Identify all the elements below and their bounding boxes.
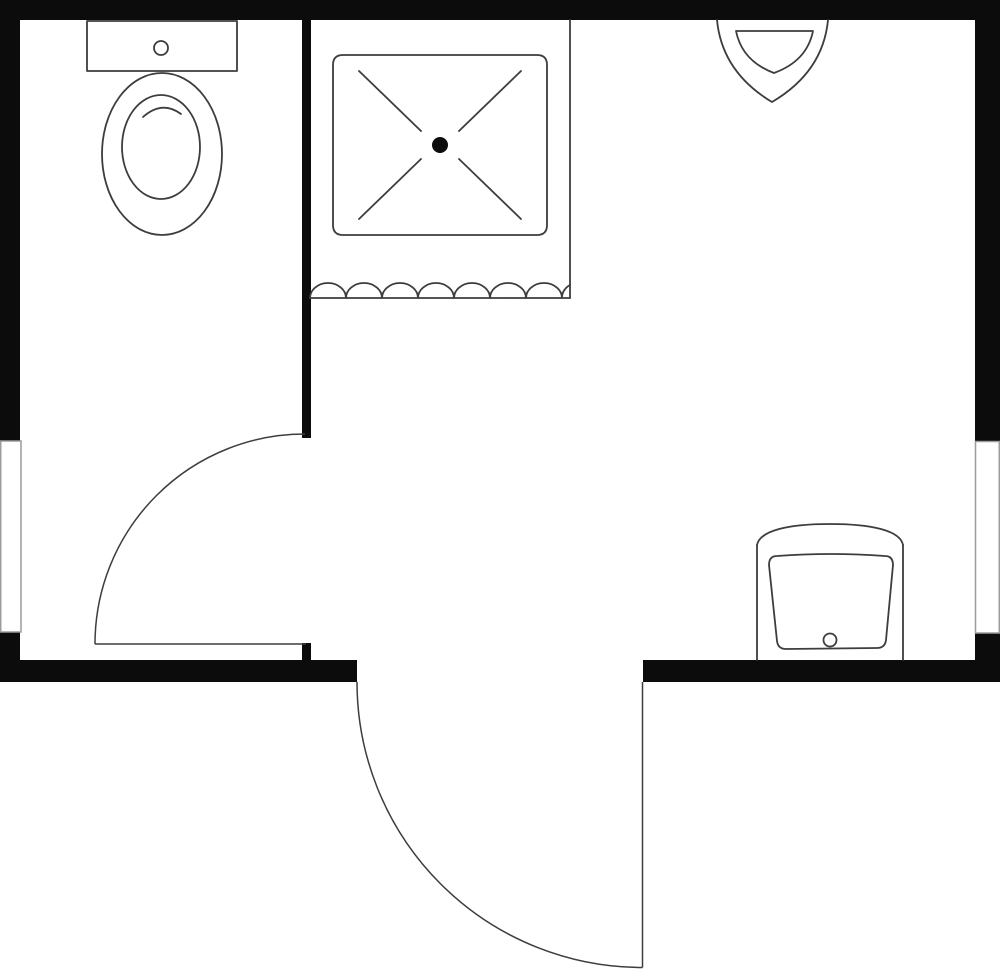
right-wall-upper [975,20,1000,441]
interior-door [95,434,306,644]
toilet [87,21,237,235]
toilet-bowl-inner [122,95,200,199]
bottom-wall-left [0,660,357,682]
floor-plan-svg [0,0,1000,969]
vanity-drain [823,633,836,646]
bottom-wall-right [643,660,1000,682]
left-window [1,441,21,632]
shower-spray-line-tr [459,71,521,131]
shower-stall [310,20,570,298]
exterior-door [357,682,643,968]
walls [0,0,1000,682]
shower-spray-line-br [459,159,521,219]
vanity-basin [769,554,893,649]
corner-basin-inner [736,31,813,73]
exterior-door-swing-arc [357,682,643,968]
left-wall-upper [0,20,20,441]
partition-wall [302,0,311,438]
shower-curtain-scallops [310,283,570,298]
interior-door-swing-arc [95,434,305,644]
toilet-rim-arc [143,108,181,117]
shower-drain [432,137,448,153]
shower-spray-line-tl [359,71,421,131]
top-wall [0,0,1000,20]
toilet-bowl-outer [102,73,222,235]
toilet-tank [87,21,237,71]
shower-spray-line-bl [359,159,421,219]
floor-plan-canvas [0,0,1000,969]
partition-wall-stub [302,643,311,660]
corner-basin-outer [717,20,828,102]
corner-basin [717,20,828,102]
vanity-back-arch [757,524,903,545]
toilet-flush-button [154,41,168,55]
right-window [976,442,1000,634]
vanity-sink [757,524,903,660]
windows [1,441,1000,633]
